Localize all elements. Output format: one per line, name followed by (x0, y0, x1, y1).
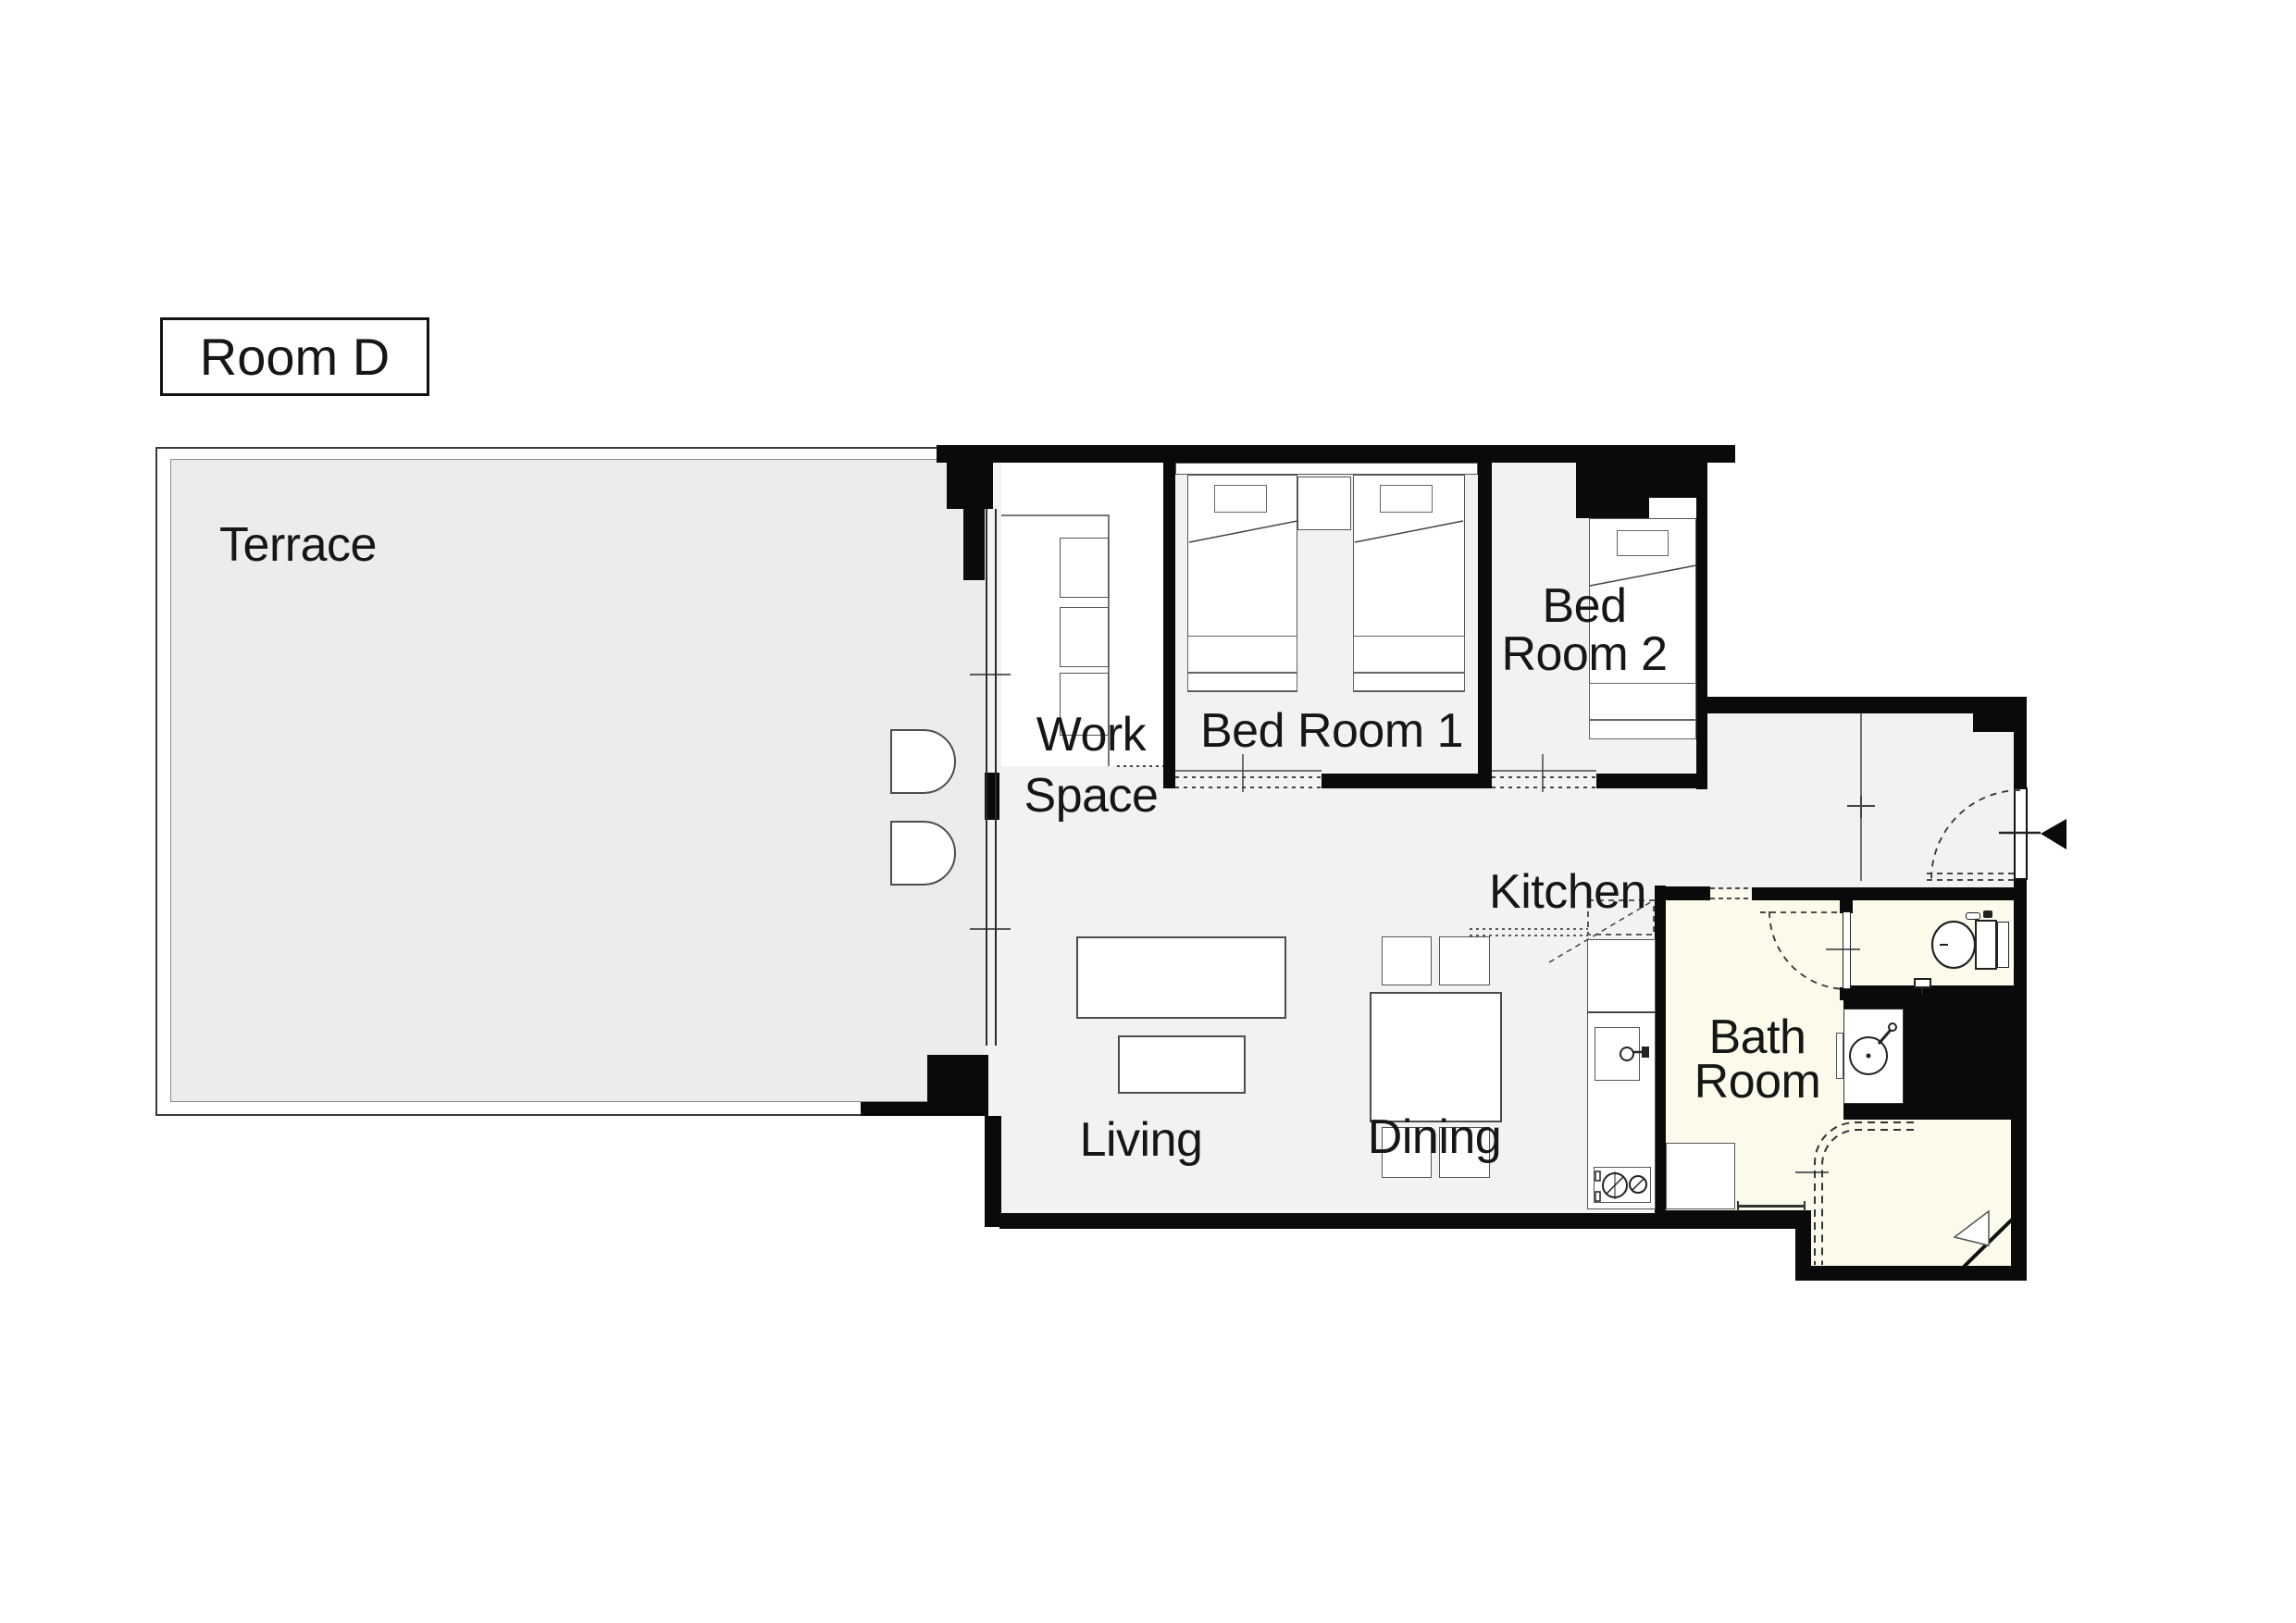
bed-3-pillow (1617, 530, 1669, 556)
entry-door-leaf (2014, 787, 2028, 880)
towel-bar (1738, 1205, 1805, 1208)
bed-2 (1353, 475, 1465, 692)
kitchen-label: Kitchen (1489, 864, 1646, 920)
work-space-label: Work Space (1024, 704, 1159, 826)
wall-bedroom1-bedroom2 (1478, 460, 1492, 788)
bedroom2-closet-niche (1649, 498, 1696, 518)
wall-left-lower (985, 1116, 1001, 1227)
bed-3-blanket (1589, 683, 1696, 720)
nightstand (1297, 477, 1351, 530)
towel-bar-end-left (1737, 1201, 1739, 1211)
room-label-box: Room D (160, 317, 429, 396)
wall-bath-top-left (1664, 886, 1710, 900)
dining-chair-top-left (1382, 936, 1432, 985)
wall-bedroom1-sliding-segment (1322, 774, 1478, 788)
bed-2-blanket-fold (1353, 673, 1465, 691)
bed-3-blanket-fold (1589, 720, 1696, 739)
dining-label: Dining (1368, 1109, 1501, 1165)
toilet-paper-holder (1914, 978, 1931, 988)
wall-top-left-corner (947, 445, 993, 509)
page-title: Room D (200, 327, 390, 387)
work-space-shelf-2 (1060, 607, 1109, 667)
dining-table (1370, 992, 1502, 1122)
living-label: Living (1080, 1112, 1203, 1168)
bed-1-blanket (1187, 636, 1297, 673)
wall-right-upper (2014, 713, 2027, 788)
washroom-door-jamb (1836, 1033, 1843, 1079)
wall-terrace-band (861, 1102, 988, 1116)
work-space-shelf-1 (1060, 538, 1109, 598)
bed-room-2-label: Bed Room 2 (1501, 582, 1667, 678)
wall-glass-mullion (985, 773, 999, 820)
entry-hall-floor (1707, 697, 2014, 890)
coffee-table (1118, 1035, 1246, 1094)
wall-shower-right (2011, 1120, 2027, 1281)
wall-kitchen-bath (1655, 886, 1666, 1229)
sofa (1076, 936, 1286, 1019)
terrace-chair-2 (890, 821, 956, 886)
bath-shower-base (1666, 1143, 1735, 1209)
wall-workspace-bedroom1 (1163, 460, 1175, 788)
wall-shower-bottom (1795, 1266, 2027, 1281)
bed-2-pillow (1380, 485, 1433, 513)
wall-terrace-jamb (963, 509, 985, 580)
kitchen-stove (1594, 1167, 1651, 1203)
wall-bottom-main (999, 1213, 1666, 1229)
towel-bar-end-right (1804, 1201, 1806, 1211)
toilet-tank (1975, 920, 1997, 970)
wall-terrace-step (927, 1055, 988, 1102)
wall-toilet-top (1752, 887, 2027, 900)
bed-2-blanket (1353, 636, 1465, 673)
toilet-lid-knob-1 (1966, 912, 1980, 920)
bed-room-1-label: Bed Room 1 (1200, 703, 1463, 759)
floor-plan: Room D (0, 0, 2296, 1623)
wall-bedroom2-sliding-segment (1596, 774, 1707, 788)
bed-1 (1187, 475, 1297, 692)
desk-edge-top (1001, 514, 1108, 516)
toilet-lid-knob-2 (1983, 911, 1992, 918)
bed-1-blanket-fold (1187, 673, 1297, 691)
kitchen-counter-divider (1587, 1011, 1656, 1013)
toilet-tank-back (1997, 922, 2009, 968)
shower-room-floor (1809, 1120, 2011, 1268)
dining-chair-top-right (1439, 936, 1490, 985)
toilet-door-leaf (1843, 911, 1851, 989)
kitchen-sink (1595, 1027, 1640, 1081)
wall-top (937, 445, 1735, 463)
washbasin-counter (1843, 1009, 1904, 1104)
bath-room-label: Bath Room (1694, 1015, 1821, 1104)
terrace-chair-1 (890, 729, 956, 794)
wall-bath-bottom (1664, 1210, 1811, 1229)
bed-1-pillow (1214, 485, 1267, 513)
wall-toilet-right (2014, 900, 2027, 985)
terrace-label: Terrace (219, 517, 377, 573)
bedroom1-headboard-shelf (1175, 463, 1478, 475)
